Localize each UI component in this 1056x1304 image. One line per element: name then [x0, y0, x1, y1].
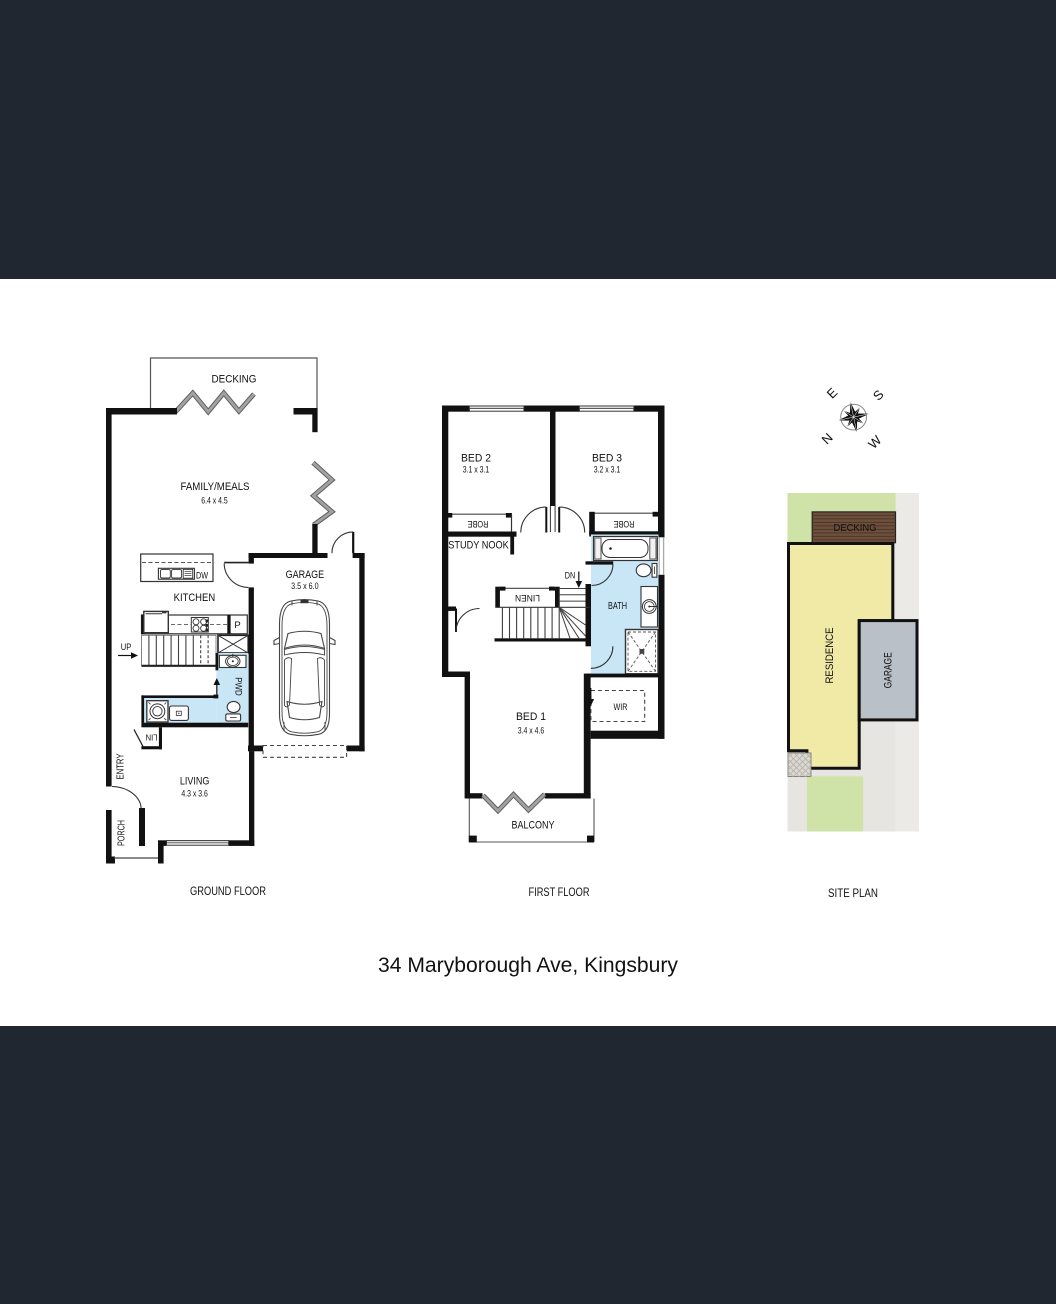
svg-text:DECKING: DECKING: [834, 522, 877, 534]
svg-text:LINEN: LINEN: [515, 593, 540, 603]
svg-text:34 Maryborough Ave, Kingsbury: 34 Maryborough Ave, Kingsbury: [378, 953, 678, 977]
svg-text:DW: DW: [196, 570, 208, 581]
svg-text:BED 2: BED 2: [461, 453, 491, 465]
svg-text:FIRST FLOOR: FIRST FLOOR: [529, 885, 590, 899]
svg-text:BED 1: BED 1: [516, 711, 546, 723]
svg-text:ENTRY: ENTRY: [116, 753, 127, 779]
svg-text:PWD: PWD: [234, 677, 244, 696]
svg-text:4.3 x 3.6: 4.3 x 3.6: [181, 789, 208, 799]
svg-text:SITE PLAN: SITE PLAN: [828, 886, 878, 900]
svg-text:3.4 x 4.6: 3.4 x 4.6: [518, 726, 545, 736]
svg-text:N: N: [819, 430, 836, 447]
svg-text:STUDY NOOK: STUDY NOOK: [448, 540, 509, 552]
svg-text:GARAGE: GARAGE: [882, 652, 894, 688]
svg-text:RESIDENCE: RESIDENCE: [824, 628, 836, 684]
svg-text:GROUND FLOOR: GROUND FLOOR: [190, 884, 266, 898]
svg-text:S: S: [870, 387, 887, 404]
svg-text:BATH: BATH: [608, 601, 627, 612]
svg-text:3.1 x 3.1: 3.1 x 3.1: [463, 465, 490, 475]
svg-text:LIVING: LIVING: [180, 776, 210, 788]
svg-text:UP: UP: [121, 642, 132, 652]
svg-text:3.2 x 3.1: 3.2 x 3.1: [594, 465, 621, 475]
svg-text:6.4 x 4.5: 6.4 x 4.5: [201, 496, 228, 506]
svg-text:ROBE: ROBE: [614, 519, 635, 529]
svg-text:DECKING: DECKING: [212, 374, 257, 386]
svg-text:LIN: LIN: [146, 733, 158, 743]
svg-text:DN: DN: [565, 571, 576, 581]
svg-text:KITCHEN: KITCHEN: [174, 592, 216, 604]
svg-text:P: P: [234, 620, 240, 631]
svg-text:W: W: [865, 432, 885, 452]
svg-text:ROBE: ROBE: [468, 519, 489, 529]
svg-text:BALCONY: BALCONY: [512, 820, 556, 832]
svg-text:GARAGE: GARAGE: [286, 569, 325, 581]
svg-text:E: E: [824, 385, 841, 402]
svg-text:BED 3: BED 3: [592, 453, 622, 465]
svg-text:3.5 x 6.0: 3.5 x 6.0: [291, 581, 319, 591]
svg-text:PORCH: PORCH: [117, 820, 128, 846]
svg-text:FAMILY/MEALS: FAMILY/MEALS: [181, 481, 250, 493]
svg-text:WIR: WIR: [614, 702, 628, 712]
